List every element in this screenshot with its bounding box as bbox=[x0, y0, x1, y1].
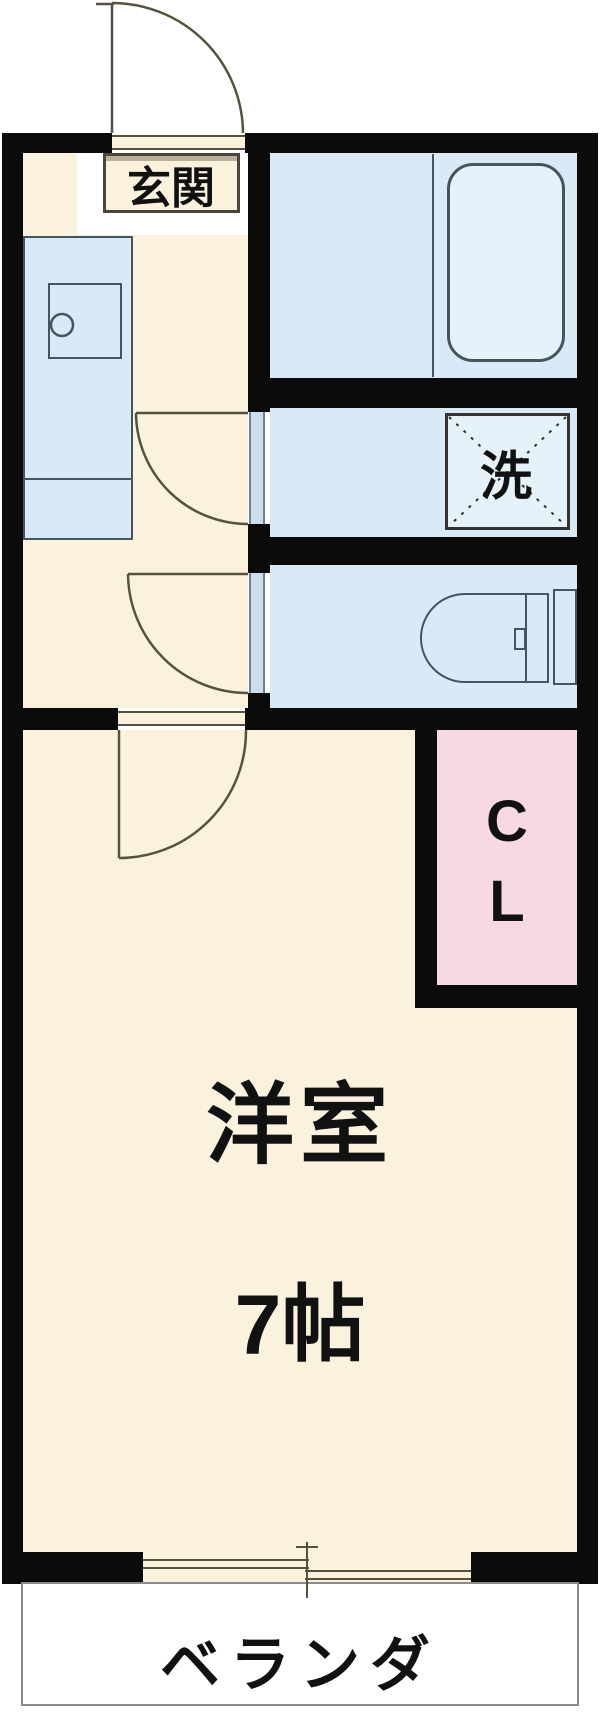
closet-frame-bottom bbox=[415, 985, 598, 1008]
wall-bottom-right bbox=[471, 1552, 598, 1582]
laundry-label: 洗 bbox=[480, 435, 532, 510]
bathtub bbox=[447, 163, 565, 362]
toilet-bowl bbox=[420, 593, 527, 683]
wall-mainroom-top-left bbox=[2, 708, 118, 730]
kitchen-sink bbox=[48, 283, 122, 359]
toilet-tank bbox=[553, 589, 577, 685]
entrance-doorway bbox=[112, 135, 245, 150]
wall-washroom-toilet bbox=[248, 537, 598, 565]
main-room-size-label: 7帖 bbox=[235, 1258, 366, 1379]
wall-corridor-upper bbox=[248, 153, 270, 412]
toilet-lever bbox=[514, 628, 526, 650]
wall-left bbox=[2, 133, 23, 1584]
kitchen-counter bbox=[23, 236, 133, 540]
wall-right bbox=[577, 133, 598, 1584]
entrance-label: 玄関 bbox=[127, 152, 215, 216]
toilet-doorway bbox=[249, 573, 265, 693]
main-room-name-label: 洋室 bbox=[206, 1055, 394, 1182]
entrance-door-arc bbox=[112, 3, 243, 133]
balcony-label: ベランダ bbox=[160, 1617, 440, 1704]
closet-label-line1: C bbox=[486, 789, 528, 854]
toilet-seat-back bbox=[525, 593, 549, 683]
floor-plan: 玄関 洗 C L 洋室 7帖 ベランダ bbox=[0, 0, 600, 1714]
closet-label: C L bbox=[486, 782, 528, 942]
wall-top-right bbox=[245, 133, 598, 153]
entrance-door-leaf bbox=[96, 3, 114, 133]
wall-bottom-left bbox=[2, 1552, 143, 1582]
closet-frame-left bbox=[415, 708, 437, 1008]
washroom-doorway bbox=[249, 412, 265, 524]
balcony-window bbox=[143, 1552, 471, 1582]
mainroom-doorway bbox=[118, 711, 245, 726]
closet-label-line2: L bbox=[489, 869, 524, 934]
wall-bath-washroom bbox=[248, 378, 598, 408]
